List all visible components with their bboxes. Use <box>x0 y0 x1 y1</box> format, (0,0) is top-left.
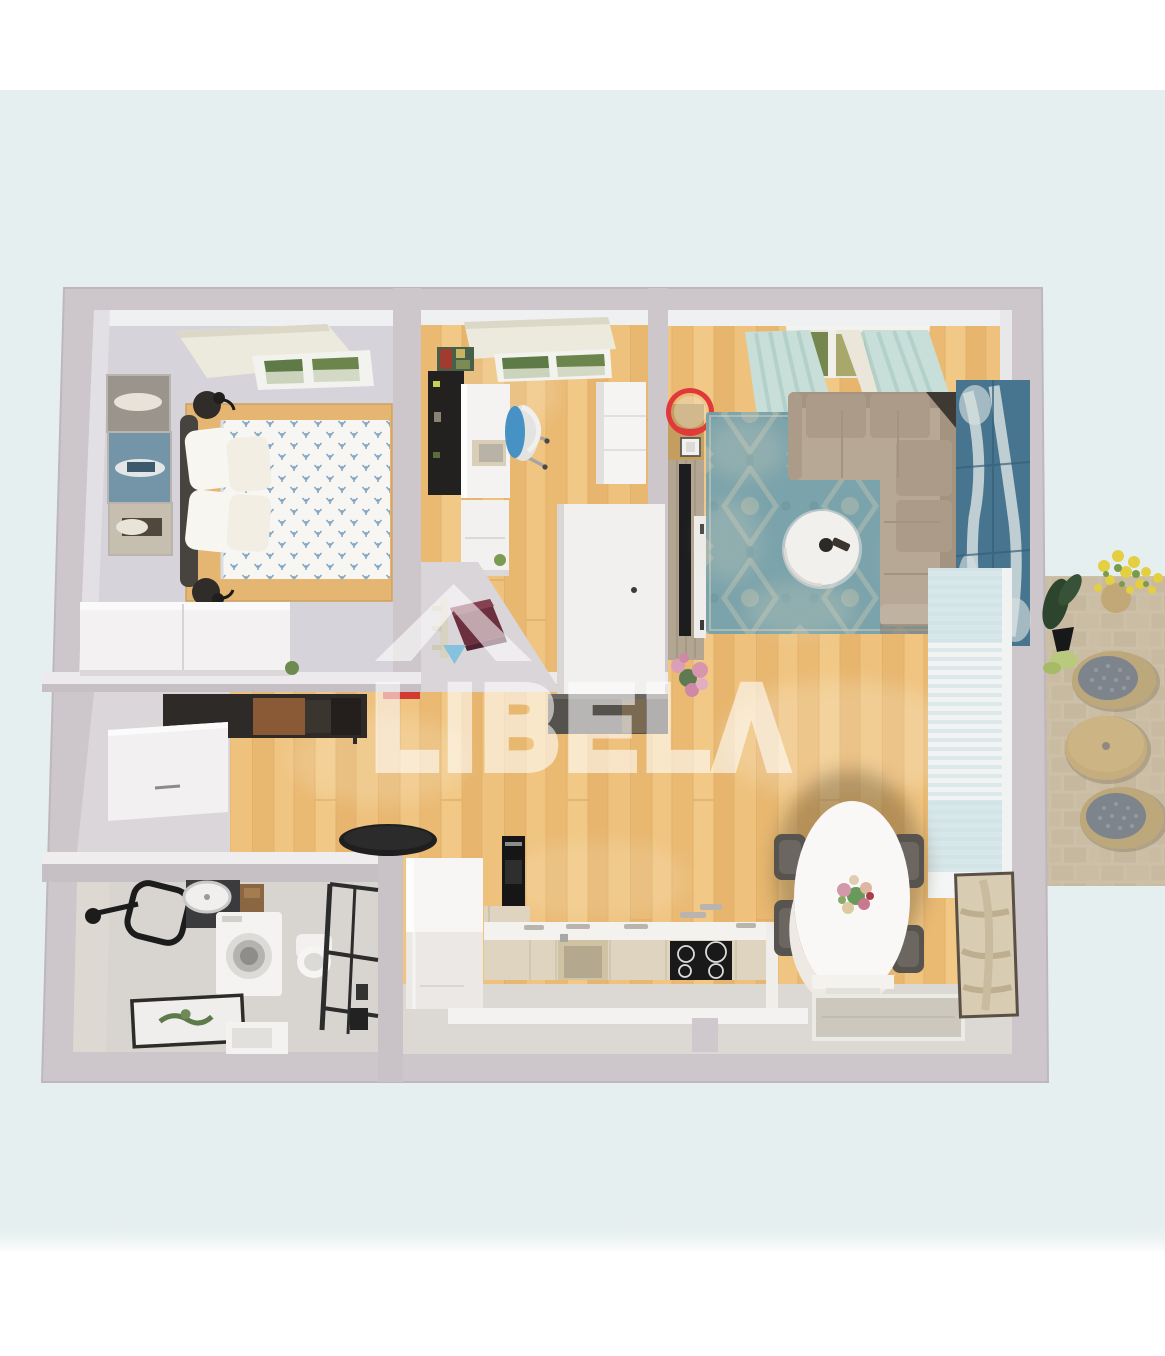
svg-text:LIBELΛ: LIBELΛ <box>373 662 794 794</box>
